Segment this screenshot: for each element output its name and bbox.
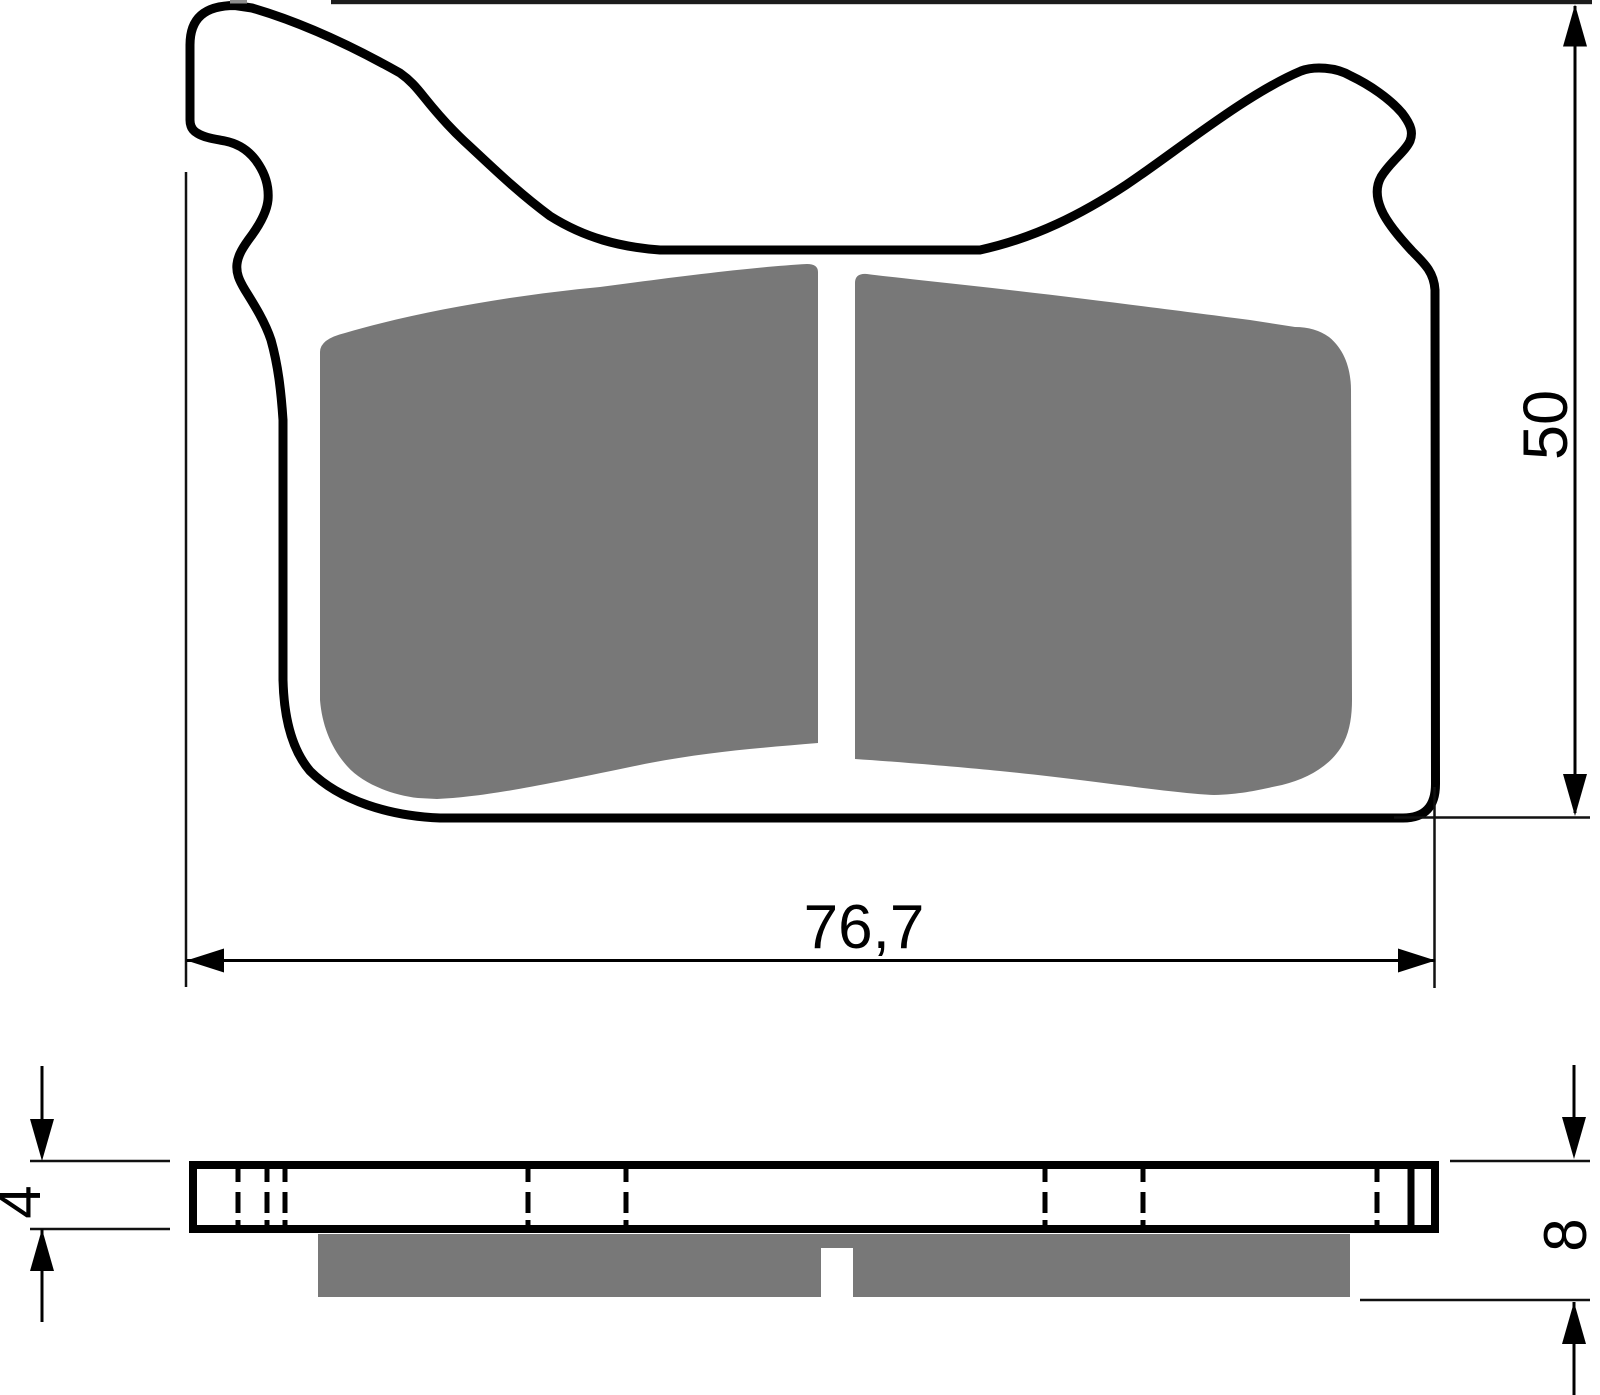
- svg-text:76,7: 76,7: [804, 893, 925, 962]
- svg-text:4: 4: [0, 1185, 53, 1218]
- svg-text:50: 50: [1511, 390, 1581, 460]
- svg-text:8: 8: [1532, 1218, 1599, 1251]
